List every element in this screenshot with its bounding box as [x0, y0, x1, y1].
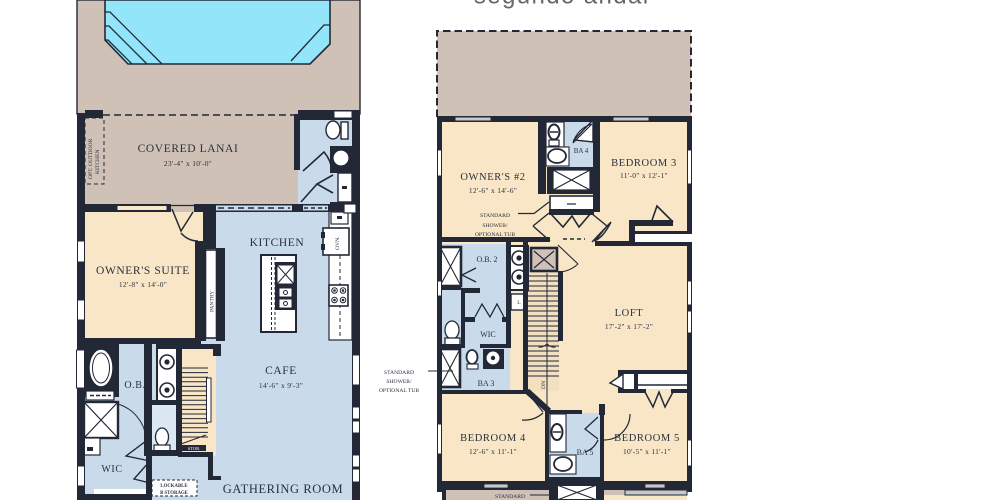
svg-text:LOFT: LOFT: [615, 308, 644, 319]
svg-text:COVERED LANAI: COVERED LANAI: [138, 143, 239, 155]
svg-text:BEDROOM 3: BEDROOM 3: [611, 158, 677, 169]
svg-text:GATHERING ROOM: GATHERING ROOM: [223, 482, 344, 496]
svg-text:BA 4: BA 4: [574, 147, 589, 155]
svg-text:DN: DN: [541, 381, 547, 389]
svg-text:STOR.: STOR.: [188, 446, 201, 451]
svg-text:O.B.: O.B.: [124, 380, 145, 391]
svg-text:BEDROOM 5: BEDROOM 5: [614, 433, 680, 444]
svg-text:11'-0" x 12'-1": 11'-0" x 12'-1": [620, 171, 668, 180]
svg-text:WIC: WIC: [480, 330, 496, 339]
svg-text:WIC: WIC: [101, 464, 122, 475]
svg-text:segundo andar: segundo andar: [474, 0, 652, 10]
svg-text:BA 3: BA 3: [478, 379, 495, 388]
svg-text:14'-6" x 9'-3": 14'-6" x 9'-3": [259, 381, 303, 390]
svg-text:O.B. 2: O.B. 2: [476, 255, 497, 264]
svg-text:CAFE: CAFE: [265, 365, 297, 377]
svg-text:KITCHEN: KITCHEN: [95, 149, 101, 174]
svg-text:STANDARD: STANDARD: [480, 213, 510, 219]
svg-text:OPTIONAL TUB: OPTIONAL TUB: [379, 388, 420, 394]
svg-text:B STORAGE: B STORAGE: [160, 491, 188, 496]
svg-text:STANDARD: STANDARD: [495, 494, 525, 500]
svg-text:SHOWER/: SHOWER/: [386, 379, 412, 385]
svg-text:12'-6" x 11'-1": 12'-6" x 11'-1": [469, 447, 517, 456]
svg-text:OWNER'S SUITE: OWNER'S SUITE: [96, 265, 190, 277]
svg-text:17'-2" x 17'-2": 17'-2" x 17'-2": [605, 322, 653, 331]
svg-text:OVN.: OVN.: [335, 236, 341, 250]
svg-text:SHOWER/: SHOWER/: [482, 223, 508, 229]
svg-text:LOCKABLE: LOCKABLE: [160, 484, 187, 489]
svg-text:12'-8" x 14'-0": 12'-8" x 14'-0": [119, 280, 167, 289]
svg-text:23'-4" x 10'-0": 23'-4" x 10'-0": [164, 159, 212, 168]
svg-text:10'-5" x 11'-1": 10'-5" x 11'-1": [623, 447, 671, 456]
svg-text:KITCHEN: KITCHEN: [250, 237, 305, 249]
svg-text:L: L: [517, 300, 521, 306]
svg-text:OWNER'S #2: OWNER'S #2: [460, 172, 525, 183]
svg-text:BEDROOM 4: BEDROOM 4: [460, 433, 526, 444]
svg-text:OPT. OUTDOOR: OPT. OUTDOOR: [88, 138, 94, 179]
svg-text:STANDARD: STANDARD: [384, 370, 414, 376]
svg-text:12'-6" x 14'-6": 12'-6" x 14'-6": [469, 186, 517, 195]
svg-text:PANTRY: PANTRY: [210, 291, 216, 312]
